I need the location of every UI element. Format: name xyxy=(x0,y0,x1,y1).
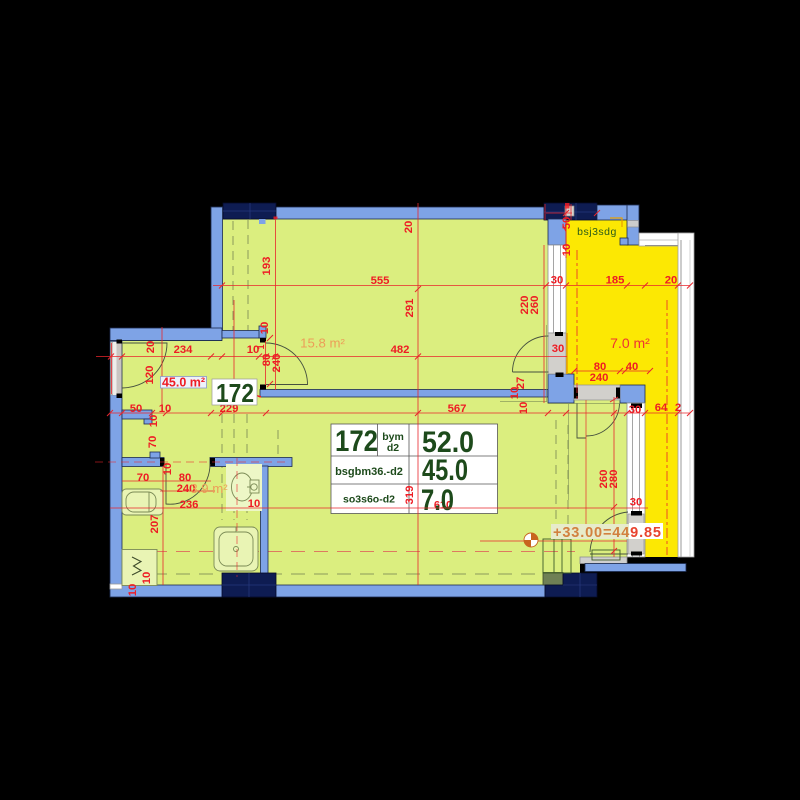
svg-text:236: 236 xyxy=(180,499,199,511)
svg-text:172: 172 xyxy=(216,378,254,408)
svg-text:10: 10 xyxy=(259,322,271,335)
svg-text:482: 482 xyxy=(391,344,410,356)
svg-text:291: 291 xyxy=(404,299,416,318)
svg-text:10: 10 xyxy=(127,584,139,597)
svg-text:so3s6o-d2: so3s6o-d2 xyxy=(343,494,395,506)
svg-text:555: 555 xyxy=(371,275,390,287)
svg-text:10: 10 xyxy=(561,244,573,257)
svg-text:30: 30 xyxy=(552,343,565,355)
svg-text:567: 567 xyxy=(448,403,467,415)
svg-text:20: 20 xyxy=(665,275,678,287)
svg-text:64: 64 xyxy=(655,402,668,414)
svg-text:30: 30 xyxy=(630,497,643,509)
svg-text:45.0: 45.0 xyxy=(422,454,468,487)
svg-text:2: 2 xyxy=(675,402,681,414)
svg-text:+33.00=449.85: +33.00=449.85 xyxy=(553,525,661,541)
svg-text:319: 319 xyxy=(404,486,416,505)
svg-text:10: 10 xyxy=(518,402,530,415)
svg-text:120: 120 xyxy=(144,366,156,385)
svg-text:207: 207 xyxy=(149,515,161,534)
svg-text:10: 10 xyxy=(141,572,153,585)
svg-text:20: 20 xyxy=(145,341,157,354)
svg-text:27: 27 xyxy=(515,377,527,390)
svg-text:260: 260 xyxy=(529,296,541,315)
svg-text:7.0 m²: 7.0 m² xyxy=(610,335,650,351)
svg-text:d2: d2 xyxy=(387,442,399,454)
svg-text:15.8 m²: 15.8 m² xyxy=(300,336,345,351)
svg-text:bsj3sdg: bsj3sdg xyxy=(577,226,617,238)
svg-text:240: 240 xyxy=(271,354,283,373)
svg-text:234: 234 xyxy=(174,344,194,356)
svg-text:bsgbm36.-d2: bsgbm36.-d2 xyxy=(335,466,403,478)
svg-text:280: 280 xyxy=(608,470,620,489)
svg-text:50: 50 xyxy=(561,217,573,230)
svg-text:3.9 m²: 3.9 m² xyxy=(190,481,228,496)
svg-text:10: 10 xyxy=(248,498,261,510)
svg-text:10: 10 xyxy=(159,403,172,415)
svg-text:70: 70 xyxy=(147,436,159,449)
svg-text:185: 185 xyxy=(606,275,625,287)
svg-text:40: 40 xyxy=(626,361,639,373)
svg-text:172: 172 xyxy=(335,425,378,458)
svg-text:50: 50 xyxy=(130,403,143,415)
svg-text:45.0 m²: 45.0 m² xyxy=(162,376,205,390)
svg-text:7.0: 7.0 xyxy=(421,484,454,517)
svg-text:30: 30 xyxy=(551,275,564,287)
svg-text:30: 30 xyxy=(629,404,642,416)
svg-text:70: 70 xyxy=(137,472,150,484)
svg-text:10: 10 xyxy=(162,463,174,476)
svg-text:10: 10 xyxy=(148,415,160,428)
svg-text:240: 240 xyxy=(590,372,609,384)
svg-text:1: 1 xyxy=(256,344,266,349)
svg-text:193: 193 xyxy=(261,257,273,276)
svg-text:20: 20 xyxy=(403,221,415,234)
